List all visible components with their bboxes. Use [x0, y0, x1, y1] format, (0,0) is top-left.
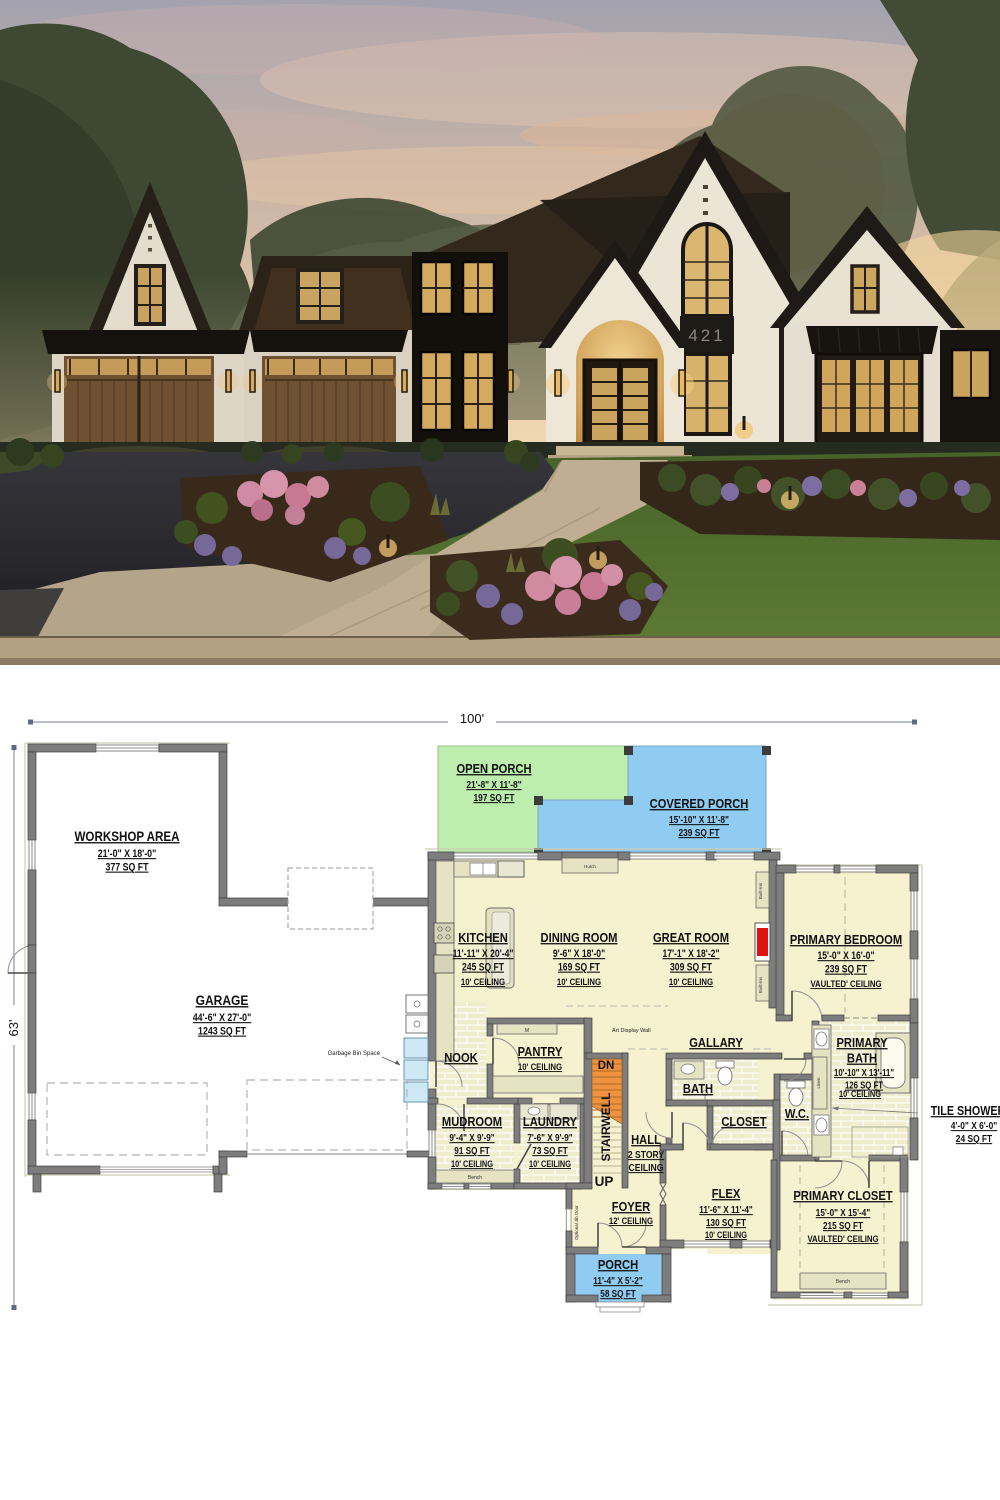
- svg-text:VAULTED' CEILING: VAULTED' CEILING: [807, 1233, 878, 1244]
- svg-text:15'-0" X 15'-4": 15'-0" X 15'-4": [816, 1206, 870, 1218]
- svg-text:GARAGE: GARAGE: [196, 992, 249, 1008]
- svg-text:21'-8" X 11'-8": 21'-8" X 11'-8": [466, 779, 521, 791]
- svg-text:Optional Jib Door: Optional Jib Door: [574, 1205, 579, 1240]
- svg-text:7'-6" X 9'-9": 7'-6" X 9'-9": [527, 1131, 572, 1143]
- svg-text:COVERED PORCH: COVERED PORCH: [650, 796, 749, 811]
- svg-text:MUDROOM: MUDROOM: [442, 1114, 502, 1129]
- svg-text:Linen: Linen: [816, 1077, 821, 1089]
- svg-text:NOOK: NOOK: [444, 1050, 478, 1065]
- svg-text:CEILING: CEILING: [629, 1162, 664, 1174]
- svg-text:309 SQ FT: 309 SQ FT: [670, 962, 712, 974]
- svg-text:VAULTED' CEILING: VAULTED' CEILING: [810, 978, 881, 989]
- svg-text:Garbage Bin Space: Garbage Bin Space: [328, 1051, 381, 1057]
- svg-text:PRIMARY CLOSET: PRIMARY CLOSET: [793, 1188, 893, 1203]
- svg-text:2 STORY: 2 STORY: [628, 1149, 665, 1161]
- svg-text:10' CEILING: 10' CEILING: [705, 1230, 747, 1240]
- svg-text:15'-0" X 16'-0": 15'-0" X 16'-0": [817, 950, 874, 962]
- svg-text:STAIRWELL: STAIRWELL: [599, 1093, 613, 1162]
- svg-text:197 SQ FT: 197 SQ FT: [473, 792, 514, 804]
- svg-text:73 SQ FT: 73 SQ FT: [532, 1144, 568, 1156]
- svg-text:GALLARY: GALLARY: [689, 1035, 743, 1050]
- svg-text:130 SQ FT: 130 SQ FT: [706, 1216, 746, 1228]
- svg-text:12' CEILING: 12' CEILING: [609, 1215, 653, 1226]
- svg-text:11'-4" X 5'-2": 11'-4" X 5'-2": [593, 1274, 642, 1286]
- svg-text:239 SQ FT: 239 SQ FT: [825, 964, 867, 976]
- svg-text:100': 100': [460, 711, 484, 726]
- svg-text:58 SQ FT: 58 SQ FT: [600, 1287, 636, 1299]
- svg-text:BATH: BATH: [847, 1051, 877, 1066]
- svg-text:W.C.: W.C.: [785, 1106, 809, 1121]
- svg-text:DN: DN: [598, 1060, 615, 1072]
- svg-text:9'-6" X 18'-0": 9'-6" X 18'-0": [553, 948, 606, 960]
- svg-text:UP: UP: [595, 1174, 614, 1189]
- svg-text:377 SQ FT: 377 SQ FT: [105, 862, 148, 874]
- svg-text:24 SQ FT: 24 SQ FT: [956, 1133, 993, 1145]
- svg-text:44'-6" X 27'-0": 44'-6" X 27'-0": [193, 1012, 252, 1024]
- svg-text:421: 421: [688, 326, 725, 345]
- svg-text:4'-0" X 6'-0": 4'-0" X 6'-0": [951, 1120, 997, 1132]
- svg-text:LAUNDRY: LAUNDRY: [523, 1114, 577, 1129]
- svg-text:Bench: Bench: [836, 1279, 850, 1285]
- svg-text:Hutch: Hutch: [584, 864, 596, 869]
- svg-text:239 SQ FT: 239 SQ FT: [678, 827, 719, 839]
- svg-text:91 SQ FT: 91 SQ FT: [454, 1144, 490, 1156]
- svg-text:Built-Ins: Built-Ins: [758, 976, 763, 993]
- svg-text:PRIMARY BEDROOM: PRIMARY BEDROOM: [790, 932, 902, 947]
- svg-text:WORKSHOP AREA: WORKSHOP AREA: [74, 829, 179, 844]
- svg-text:PORCH: PORCH: [598, 1257, 638, 1272]
- svg-text:Art Display Wall: Art Display Wall: [612, 1028, 651, 1034]
- svg-text:10' CEILING: 10' CEILING: [557, 976, 601, 987]
- svg-text:DINING ROOM: DINING ROOM: [541, 930, 618, 945]
- svg-text:11'-6" X 11'-4": 11'-6" X 11'-4": [699, 1203, 753, 1215]
- svg-text:63': 63': [6, 1020, 21, 1037]
- svg-text:11'-11" X 20'-4": 11'-11" X 20'-4": [453, 948, 514, 960]
- svg-text:PRIMARY: PRIMARY: [836, 1035, 887, 1050]
- svg-text:15'-10" X 11'-8": 15'-10" X 11'-8": [669, 814, 729, 826]
- svg-text:HALL: HALL: [631, 1132, 661, 1147]
- svg-text:Built-Ins: Built-Ins: [758, 882, 763, 899]
- svg-text:OPEN PORCH: OPEN PORCH: [456, 761, 531, 776]
- svg-text:FOYER: FOYER: [612, 1199, 651, 1214]
- svg-text:169 SQ FT: 169 SQ FT: [558, 962, 600, 974]
- svg-text:1243 SQ FT: 1243 SQ FT: [198, 1026, 246, 1038]
- svg-text:GREAT ROOM: GREAT ROOM: [653, 930, 729, 945]
- svg-text:10' CEILING: 10' CEILING: [529, 1159, 571, 1169]
- svg-text:Bench: Bench: [468, 1175, 482, 1181]
- svg-text:215 SQ FT: 215 SQ FT: [823, 1219, 863, 1231]
- svg-text:10' CEILING: 10' CEILING: [839, 1089, 881, 1099]
- svg-text:10' CEILING: 10' CEILING: [461, 976, 505, 987]
- svg-text:10'-10" X 13'-11": 10'-10" X 13'-11": [834, 1067, 894, 1078]
- svg-text:21'-0" X 18'-0": 21'-0" X 18'-0": [98, 848, 157, 860]
- svg-text:FLEX: FLEX: [712, 1186, 741, 1201]
- svg-text:KITCHEN: KITCHEN: [458, 930, 508, 945]
- svg-text:10' CEILING: 10' CEILING: [518, 1061, 562, 1072]
- svg-text:PANTRY: PANTRY: [518, 1044, 563, 1059]
- svg-text:BATH: BATH: [683, 1081, 713, 1096]
- svg-text:245 SQ FT: 245 SQ FT: [462, 962, 504, 974]
- svg-text:9'-4" X 9'-9": 9'-4" X 9'-9": [449, 1131, 494, 1143]
- svg-text:10' CEILING: 10' CEILING: [669, 976, 713, 987]
- svg-text:TILE SHOWER: TILE SHOWER: [931, 1104, 1000, 1118]
- svg-text:M: M: [525, 1028, 529, 1034]
- svg-text:10' CEILING: 10' CEILING: [451, 1159, 493, 1169]
- svg-text:17'-1" X 18'-2": 17'-1" X 18'-2": [662, 948, 719, 960]
- svg-text:CLOSET: CLOSET: [721, 1114, 767, 1129]
